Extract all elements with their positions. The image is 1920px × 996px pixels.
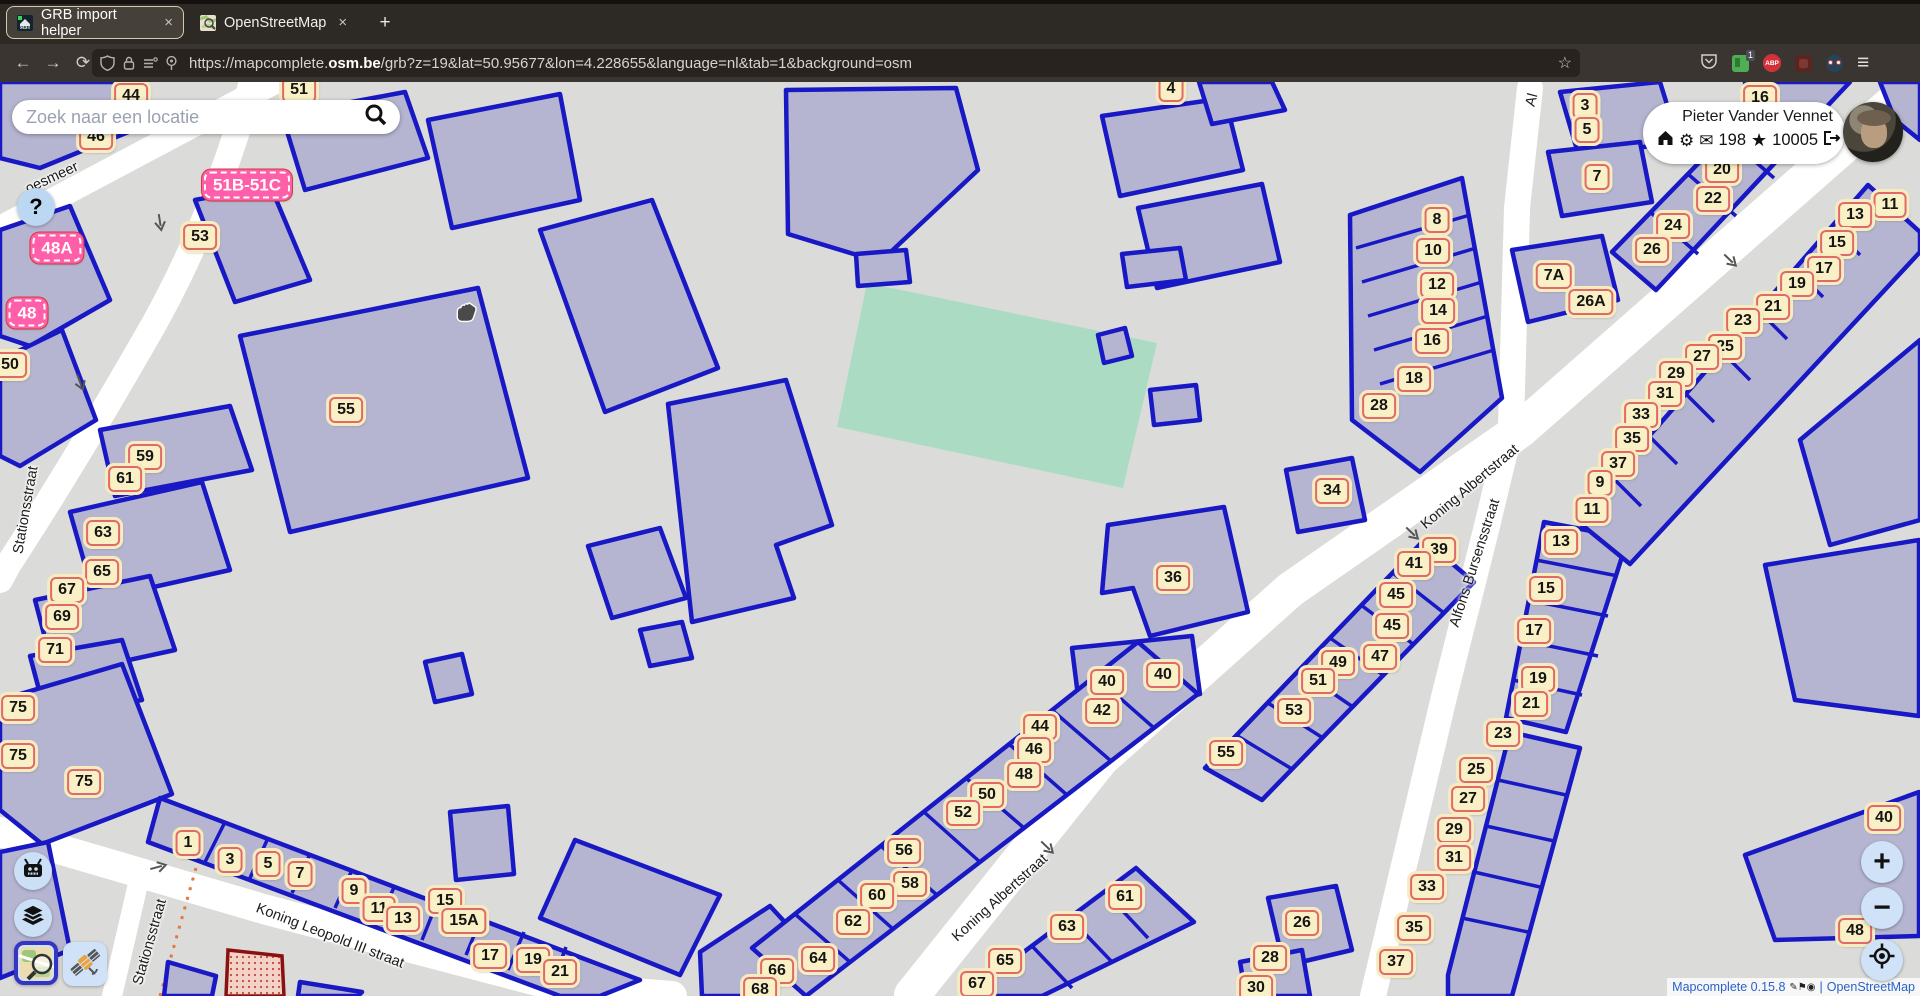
- house-number-label[interactable]: 13: [1838, 202, 1872, 228]
- house-number-label[interactable]: 50: [0, 352, 27, 378]
- extension-badge: 1: [1746, 50, 1755, 61]
- pocket-icon[interactable]: [1700, 52, 1718, 75]
- house-number-label[interactable]: 71: [38, 637, 72, 663]
- tab-close-icon[interactable]: ×: [164, 14, 173, 31]
- house-number-label[interactable]: 52: [946, 800, 980, 826]
- background-map-button[interactable]: [14, 941, 58, 985]
- house-number-label[interactable]: 14: [1421, 298, 1455, 324]
- house-number-label[interactable]: 11: [1576, 497, 1609, 523]
- house-number-label[interactable]: 16: [1415, 328, 1449, 354]
- house-number-label[interactable]: 12: [1420, 272, 1454, 298]
- house-number-label[interactable]: 15: [1820, 230, 1854, 256]
- house-number-label[interactable]: 21: [1756, 294, 1790, 320]
- house-number-label[interactable]: 7A: [1536, 263, 1572, 289]
- house-number-label[interactable]: 5: [1575, 117, 1600, 143]
- star-icon: ★: [1751, 130, 1767, 151]
- import-robot-button[interactable]: [14, 852, 52, 890]
- house-number-label[interactable]: 15A: [441, 908, 486, 934]
- house-number-label[interactable]: 23: [1726, 308, 1760, 334]
- search-icon[interactable]: [364, 103, 388, 132]
- lock-icon[interactable]: [122, 55, 136, 71]
- home-icon[interactable]: [1657, 130, 1674, 151]
- house-number-label[interactable]: 9: [1588, 470, 1613, 496]
- settings-gear-icon[interactable]: ⚙: [1679, 131, 1694, 151]
- house-number-label[interactable]: 31: [1437, 845, 1471, 871]
- house-number-label[interactable]: 3: [218, 847, 243, 873]
- house-number-label[interactable]: 17: [1517, 618, 1551, 644]
- house-number-label[interactable]: 69: [45, 604, 79, 630]
- house-number-label[interactable]: 34: [1315, 478, 1349, 504]
- changeset-count: 10005: [1772, 131, 1818, 150]
- tab-close-icon[interactable]: ×: [338, 14, 347, 31]
- message-count: 198: [1719, 131, 1747, 150]
- house-number-label[interactable]: 18: [1397, 366, 1431, 392]
- house-number-label[interactable]: 55: [329, 397, 363, 423]
- map-thumbnail-icon: [20, 947, 52, 979]
- house-number-label[interactable]: 23: [1486, 721, 1520, 747]
- house-number-label[interactable]: 58: [893, 871, 927, 897]
- house-number-label[interactable]: 13: [1544, 529, 1578, 555]
- url-text[interactable]: https://mapcomplete.osm.be/grb?z=19&lat=…: [189, 55, 912, 72]
- grb-favicon-icon: GRB: [17, 15, 33, 31]
- house-number-label[interactable]: 26: [1635, 237, 1669, 263]
- house-number-label[interactable]: 40: [1090, 669, 1124, 695]
- house-number-label[interactable]: 67: [960, 971, 994, 996]
- house-number-label[interactable]: 24: [1656, 213, 1690, 239]
- house-number-label[interactable]: 62: [836, 909, 870, 935]
- house-number-label[interactable]: 36: [1156, 565, 1190, 591]
- user-avatar[interactable]: [1843, 102, 1903, 162]
- house-number-label[interactable]: 19: [1521, 666, 1555, 692]
- house-number-label[interactable]: 40: [1867, 805, 1901, 831]
- house-number-label[interactable]: 28: [1362, 393, 1396, 419]
- house-number-label[interactable]: 35: [1615, 426, 1649, 452]
- house-number-label[interactable]: 47: [1363, 644, 1397, 670]
- house-number-label[interactable]: 65: [988, 948, 1022, 974]
- house-number-label[interactable]: 5: [256, 851, 281, 877]
- background-satellite-button[interactable]: [63, 942, 107, 986]
- adblock-plus-icon[interactable]: ABP: [1763, 54, 1781, 72]
- reader-mode-icon[interactable]: [143, 56, 158, 70]
- house-number-label[interactable]: 65: [85, 559, 119, 585]
- extension-icon-mask[interactable]: [1826, 55, 1843, 72]
- geolocate-icon: [1868, 942, 1896, 978]
- house-number-label-selected[interactable]: 48A: [32, 235, 81, 262]
- house-number-label[interactable]: 42: [1085, 698, 1119, 724]
- layers-button[interactable]: [14, 899, 52, 937]
- bookmark-star-icon[interactable]: ☆: [1558, 53, 1572, 73]
- zoom-out-button[interactable]: −: [1861, 887, 1903, 929]
- browser-window: 4451446535055596163656769717575751357911…: [0, 0, 1920, 996]
- user-panel[interactable]: Pieter Vander Vennet ⚙ ✉ 198 ★ 10005: [1643, 102, 1845, 164]
- grb-import-candidate-building[interactable]: [226, 950, 284, 996]
- house-number-label[interactable]: 75: [67, 769, 101, 795]
- forward-button[interactable]: →: [38, 53, 68, 73]
- house-number-label[interactable]: 45: [1379, 582, 1413, 608]
- house-number-label[interactable]: 35: [1397, 915, 1431, 941]
- house-number-label[interactable]: 3: [1573, 93, 1598, 119]
- house-number-label[interactable]: 61: [1108, 884, 1142, 910]
- tab-openstreetmap[interactable]: OpenStreetMap ×: [190, 6, 362, 39]
- house-number-label[interactable]: 22: [1696, 186, 1730, 212]
- house-number-label[interactable]: 61: [108, 466, 142, 492]
- zoom-in-button[interactable]: +: [1861, 841, 1903, 883]
- house-number-label[interactable]: 13: [386, 906, 420, 932]
- house-number-label[interactable]: 37: [1379, 949, 1413, 975]
- house-number-label[interactable]: 33: [1410, 874, 1444, 900]
- house-number-label[interactable]: 46: [1017, 737, 1051, 763]
- house-number-label[interactable]: 68: [743, 977, 777, 996]
- satellite-icon: [67, 944, 103, 985]
- house-number-label[interactable]: 40: [1146, 662, 1180, 688]
- attribution-separator: |: [1820, 980, 1823, 994]
- house-number-label[interactable]: 17: [473, 943, 507, 969]
- new-tab-button[interactable]: +: [372, 10, 398, 36]
- logout-icon[interactable]: [1823, 130, 1841, 151]
- house-number-label[interactable]: 75: [1, 743, 35, 769]
- house-number-label[interactable]: 48: [1007, 762, 1041, 788]
- house-number-label[interactable]: 64: [801, 946, 835, 972]
- back-button[interactable]: ←: [8, 53, 38, 73]
- search-input[interactable]: [24, 106, 364, 129]
- browser-toolbar: ← → ⟳ https://mapcomplete.osm.be/grb?z=1…: [0, 44, 1920, 82]
- house-number-label[interactable]: 51: [1301, 668, 1335, 694]
- house-number-label[interactable]: 7: [288, 861, 313, 887]
- layers-icon: [20, 904, 46, 933]
- house-number-label[interactable]: 60: [860, 883, 894, 909]
- messages-icon[interactable]: ✉: [1699, 131, 1713, 151]
- house-number-label[interactable]: 55: [1209, 740, 1243, 766]
- house-number-label[interactable]: 53: [1277, 698, 1311, 724]
- house-number-label[interactable]: 33: [1624, 402, 1658, 428]
- house-number-label[interactable]: 21: [1514, 691, 1548, 717]
- house-number-label[interactable]: 8: [1425, 207, 1450, 233]
- extension-area: 1 ABP ≡: [1700, 44, 1869, 82]
- house-number-label[interactable]: 11: [1874, 192, 1907, 218]
- browser-tab-bar: GRB GRB import helper × OpenStreetMap × …: [0, 0, 1920, 44]
- tab-title: GRB import helper: [41, 7, 152, 39]
- house-number-label-selected[interactable]: 48: [9, 300, 46, 327]
- house-number-label[interactable]: 27: [1451, 786, 1485, 812]
- house-number-label[interactable]: 1: [176, 830, 201, 856]
- attribution-icons[interactable]: ✎⚑◉: [1789, 982, 1815, 993]
- house-number-label-selected[interactable]: 51B-51C: [204, 172, 290, 199]
- house-number-label[interactable]: 15: [1529, 576, 1563, 602]
- shield-icon[interactable]: [100, 55, 115, 71]
- help-button[interactable]: ?: [17, 188, 55, 226]
- house-number-label[interactable]: 7: [1585, 164, 1610, 190]
- menu-icon[interactable]: ≡: [1857, 51, 1869, 75]
- house-number-label[interactable]: 56: [887, 838, 921, 864]
- house-number-label[interactable]: 25: [1459, 757, 1493, 783]
- house-number-label[interactable]: 63: [1050, 914, 1084, 940]
- user-name: Pieter Vander Vennet: [1657, 108, 1835, 126]
- house-number-label[interactable]: 75: [1, 695, 35, 721]
- robot-icon: [20, 857, 46, 886]
- house-number-label[interactable]: 53: [183, 224, 217, 250]
- house-number-label[interactable]: 67: [50, 577, 84, 603]
- mapcomplete-version-link[interactable]: Mapcomplete 0.15.8: [1672, 980, 1785, 994]
- location-permission-icon[interactable]: [165, 55, 178, 71]
- house-number-label[interactable]: 26: [1285, 910, 1319, 936]
- svg-text:GRB: GRB: [20, 25, 31, 30]
- house-number-label[interactable]: 41: [1397, 551, 1431, 577]
- url-bar[interactable]: https://mapcomplete.osm.be/grb?z=19&lat=…: [92, 49, 1580, 77]
- location-search[interactable]: [12, 100, 400, 134]
- extension-icon-green[interactable]: 1: [1732, 55, 1749, 72]
- tab-title: OpenStreetMap: [224, 15, 326, 31]
- osm-favicon-icon: [200, 15, 216, 31]
- tab-grb-import-helper[interactable]: GRB GRB import helper ×: [6, 6, 184, 39]
- house-number-label[interactable]: 45: [1375, 613, 1409, 639]
- house-number-label[interactable]: 29: [1437, 817, 1471, 843]
- extension-icon-dark[interactable]: [1795, 55, 1812, 72]
- house-number-label[interactable]: 26A: [1568, 289, 1613, 315]
- house-number-label[interactable]: 63: [86, 520, 120, 546]
- map-canvas[interactable]: [0, 0, 1920, 996]
- house-number-label[interactable]: 21: [543, 959, 577, 985]
- house-number-label[interactable]: 30: [1239, 975, 1273, 996]
- house-number-label[interactable]: 28: [1253, 945, 1287, 971]
- geolocate-button[interactable]: [1861, 939, 1903, 981]
- openstreetmap-link[interactable]: OpenStreetMap: [1827, 980, 1915, 994]
- house-number-label[interactable]: 10: [1416, 238, 1450, 264]
